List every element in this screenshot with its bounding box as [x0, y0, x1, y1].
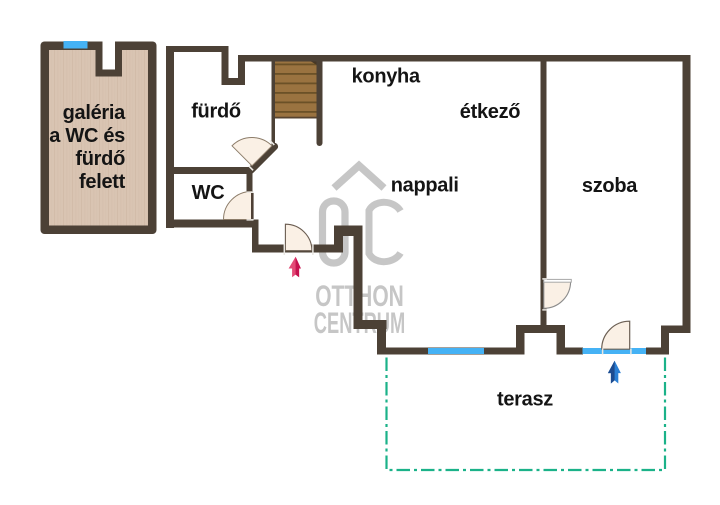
svg-text:a WC és: a WC és — [49, 125, 125, 147]
svg-text:fürdő: fürdő — [191, 101, 241, 123]
svg-text:fürdő: fürdő — [75, 148, 125, 170]
svg-text:galéria: galéria — [63, 102, 127, 124]
svg-text:WC: WC — [192, 182, 225, 204]
svg-text:felett: felett — [79, 171, 126, 193]
svg-text:terasz: terasz — [497, 389, 553, 411]
svg-text:konyha: konyha — [352, 65, 421, 87]
svg-text:szoba: szoba — [582, 175, 638, 197]
svg-text:nappali: nappali — [391, 175, 459, 197]
svg-text:étkező: étkező — [460, 101, 521, 123]
